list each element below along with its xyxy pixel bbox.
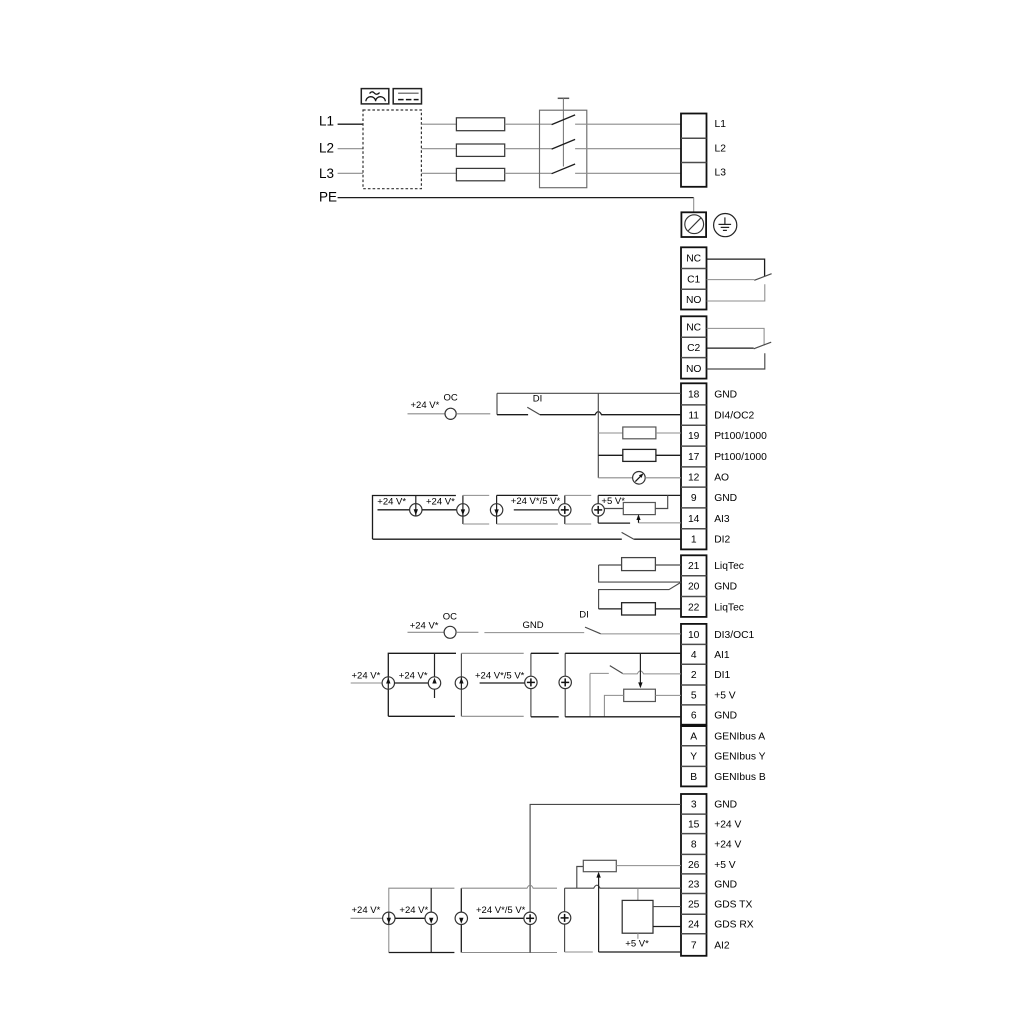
svg-text:DI1: DI1 bbox=[714, 670, 730, 681]
svg-text:3: 3 bbox=[691, 800, 697, 811]
svg-text:GND: GND bbox=[714, 582, 737, 593]
svg-text:21: 21 bbox=[688, 561, 700, 572]
svg-text:GENIbus B: GENIbus B bbox=[714, 772, 766, 783]
svg-text:8: 8 bbox=[691, 840, 697, 851]
svg-text:+24 V: +24 V bbox=[714, 840, 741, 851]
svg-text:DI4/OC2: DI4/OC2 bbox=[714, 411, 754, 422]
svg-text:25: 25 bbox=[688, 900, 700, 911]
svg-text:GND: GND bbox=[714, 710, 737, 721]
svg-text:5: 5 bbox=[691, 691, 697, 702]
svg-text:18: 18 bbox=[688, 390, 700, 401]
svg-text:26: 26 bbox=[688, 860, 700, 871]
svg-text:L1: L1 bbox=[319, 114, 334, 129]
svg-text:+5 V*: +5 V* bbox=[625, 939, 649, 950]
svg-text:NC: NC bbox=[686, 254, 701, 265]
svg-text:A: A bbox=[690, 732, 697, 743]
svg-text:+24 V*: +24 V* bbox=[377, 497, 406, 508]
svg-text:+24 V: +24 V bbox=[714, 820, 741, 831]
svg-text:GND: GND bbox=[714, 390, 737, 401]
svg-text:B: B bbox=[690, 772, 697, 783]
svg-text:12: 12 bbox=[688, 473, 700, 484]
svg-text:DI2: DI2 bbox=[714, 535, 730, 546]
svg-text:AO: AO bbox=[714, 473, 729, 484]
svg-text:AI2: AI2 bbox=[714, 940, 730, 951]
svg-text:20: 20 bbox=[688, 582, 700, 593]
svg-text:C1: C1 bbox=[687, 275, 700, 286]
svg-text:+24 V*: +24 V* bbox=[399, 905, 428, 916]
svg-text:+5 V: +5 V bbox=[714, 860, 736, 871]
svg-text:17: 17 bbox=[688, 452, 700, 463]
svg-text:19: 19 bbox=[688, 431, 700, 442]
svg-text:L2: L2 bbox=[319, 140, 334, 155]
svg-text:L2: L2 bbox=[715, 143, 727, 154]
svg-text:NO: NO bbox=[686, 364, 701, 375]
svg-text:10: 10 bbox=[688, 630, 700, 641]
svg-text:GDS RX: GDS RX bbox=[714, 920, 754, 931]
svg-text:+24 V*: +24 V* bbox=[411, 400, 440, 411]
svg-text:7: 7 bbox=[691, 940, 697, 951]
svg-text:GND: GND bbox=[523, 620, 544, 631]
svg-text:NO: NO bbox=[686, 295, 701, 306]
svg-text:+24 V*/5 V*: +24 V*/5 V* bbox=[475, 671, 525, 682]
svg-text:22: 22 bbox=[688, 602, 700, 613]
svg-text:Pt100/1000: Pt100/1000 bbox=[714, 452, 767, 463]
svg-text:OC: OC bbox=[443, 612, 457, 623]
svg-text:LiqTec: LiqTec bbox=[714, 602, 744, 613]
svg-text:14: 14 bbox=[688, 514, 700, 525]
svg-text:+24 V*: +24 V* bbox=[352, 671, 381, 682]
svg-text:11: 11 bbox=[688, 411, 699, 422]
svg-text:23: 23 bbox=[688, 879, 700, 890]
svg-text:6: 6 bbox=[691, 710, 697, 721]
svg-text:+24 V*: +24 V* bbox=[410, 621, 439, 632]
svg-text:LiqTec: LiqTec bbox=[714, 561, 744, 572]
svg-text:PE: PE bbox=[319, 189, 337, 204]
svg-text:+24 V*: +24 V* bbox=[352, 905, 381, 916]
svg-text:L3: L3 bbox=[715, 168, 727, 179]
svg-text:AI3: AI3 bbox=[714, 514, 730, 525]
svg-text:+5 V*: +5 V* bbox=[601, 496, 625, 507]
svg-text:GND: GND bbox=[714, 493, 737, 504]
svg-text:2: 2 bbox=[691, 670, 697, 681]
svg-text:DI3/OC1: DI3/OC1 bbox=[714, 630, 754, 641]
svg-text:1: 1 bbox=[691, 535, 697, 546]
svg-text:C2: C2 bbox=[687, 343, 700, 354]
svg-text:Pt100/1000: Pt100/1000 bbox=[714, 431, 767, 442]
svg-text:GENIbus Y: GENIbus Y bbox=[714, 752, 765, 763]
svg-text:4: 4 bbox=[691, 650, 697, 661]
svg-text:DI: DI bbox=[533, 393, 543, 404]
svg-text:+24 V*/5 V*: +24 V*/5 V* bbox=[476, 905, 526, 916]
svg-text:AI1: AI1 bbox=[714, 650, 730, 661]
svg-text:+5 V: +5 V bbox=[714, 691, 736, 702]
svg-text:15: 15 bbox=[688, 820, 700, 831]
svg-text:Y: Y bbox=[690, 752, 697, 763]
svg-text:NC: NC bbox=[686, 323, 701, 334]
svg-text:GND: GND bbox=[714, 879, 737, 890]
svg-text:+24 V*: +24 V* bbox=[399, 671, 428, 682]
svg-text:+24 V*: +24 V* bbox=[426, 497, 455, 508]
svg-text:DI: DI bbox=[579, 609, 589, 620]
svg-text:L1: L1 bbox=[715, 119, 727, 130]
svg-text:GDS TX: GDS TX bbox=[714, 900, 752, 911]
svg-text:GND: GND bbox=[714, 800, 737, 811]
svg-text:24: 24 bbox=[688, 920, 700, 931]
svg-text:L3: L3 bbox=[319, 166, 334, 181]
svg-text:9: 9 bbox=[691, 493, 697, 504]
svg-text:OC: OC bbox=[444, 393, 458, 404]
svg-text:+24 V*/5 V*: +24 V*/5 V* bbox=[511, 496, 561, 507]
svg-text:GENIbus A: GENIbus A bbox=[714, 732, 765, 743]
